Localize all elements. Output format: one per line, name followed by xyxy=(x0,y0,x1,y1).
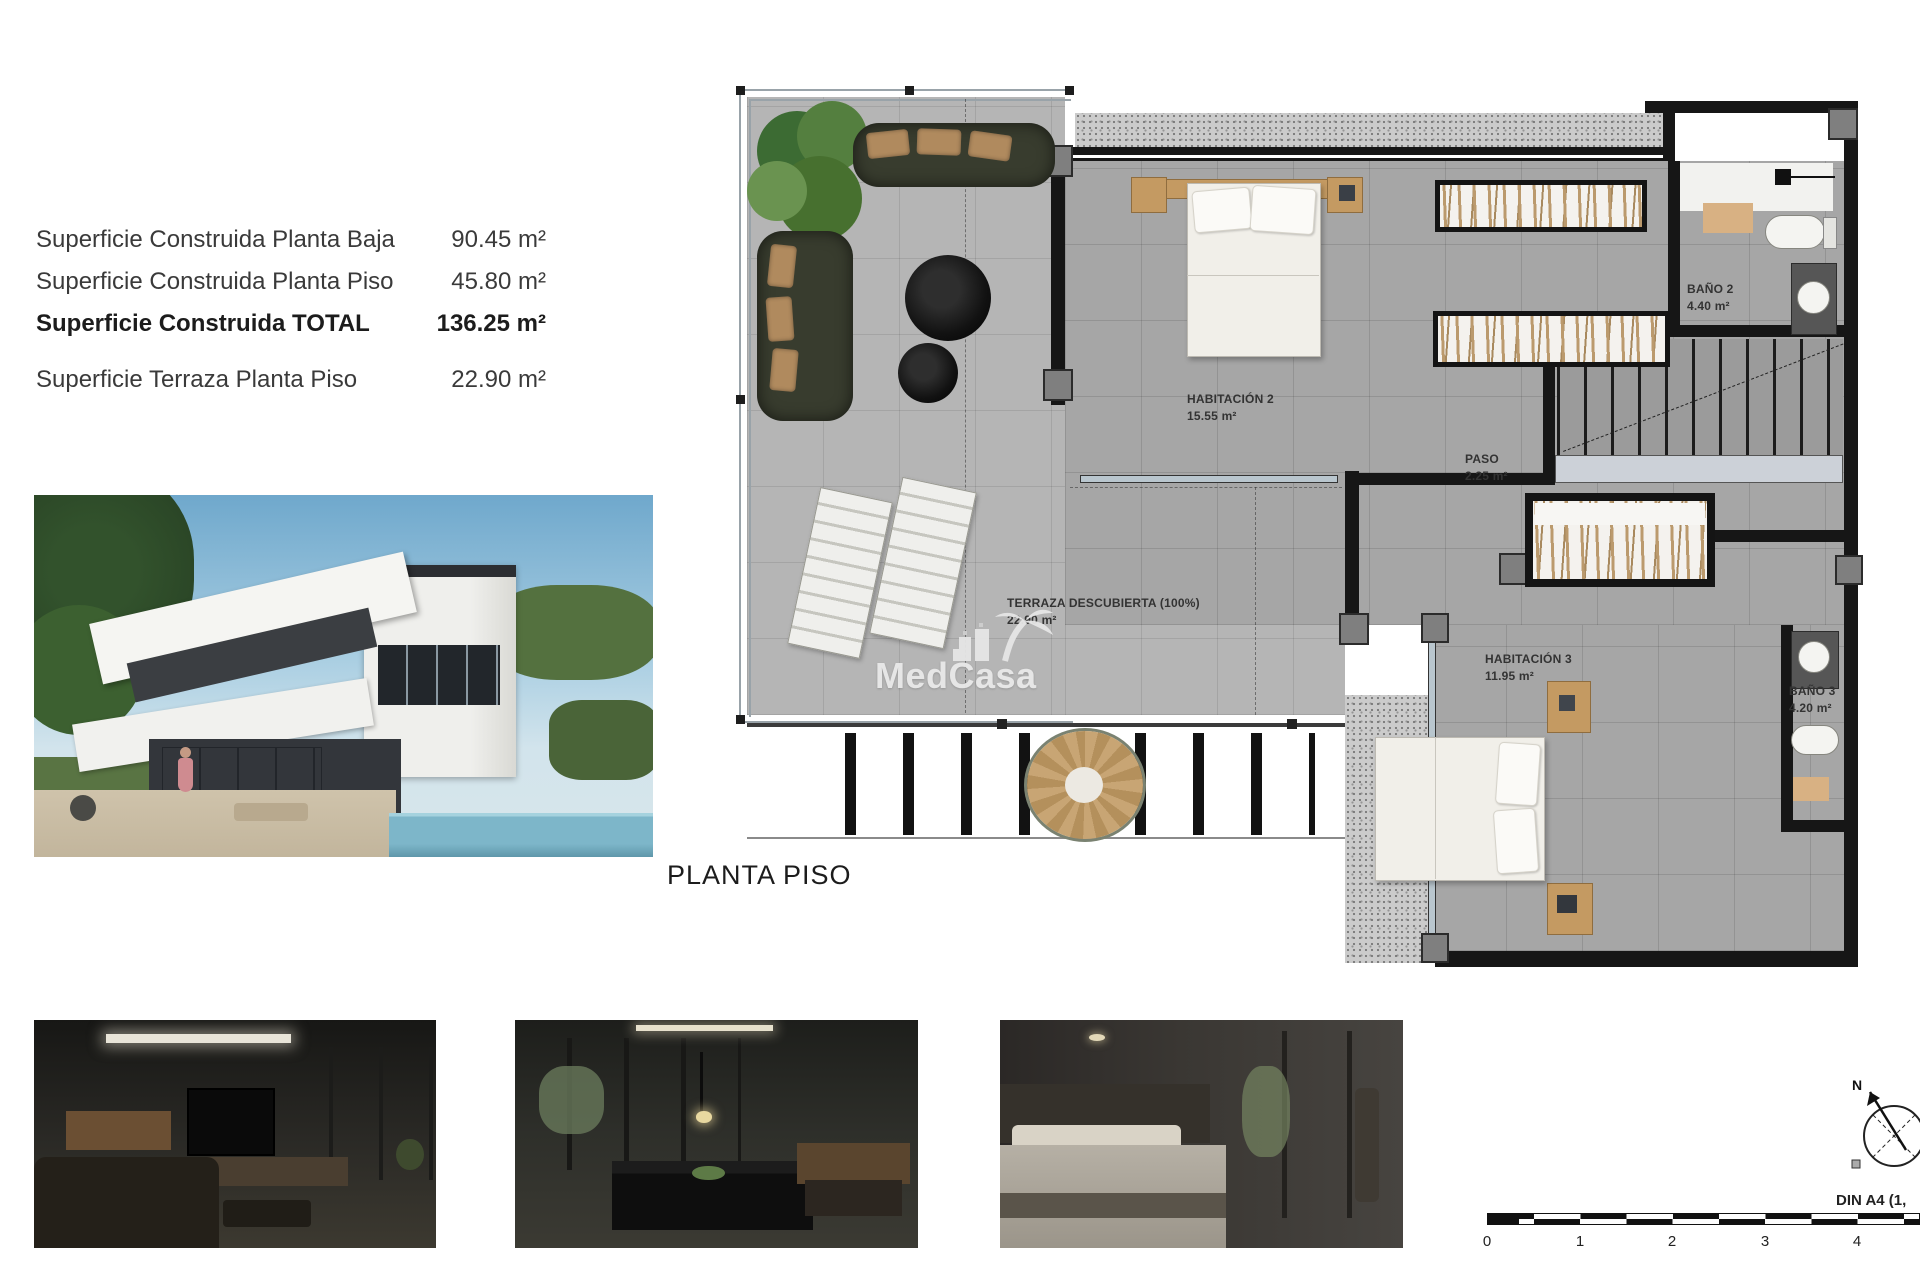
nightstand-decor xyxy=(1339,185,1355,201)
scale-tick: 1 xyxy=(1576,1233,1584,1250)
wall-jog xyxy=(1663,101,1675,161)
gravel-strip-top xyxy=(1075,113,1665,147)
summary-label: Superficie Construida Planta Piso xyxy=(36,268,394,295)
wall-top xyxy=(1065,147,1670,161)
shower-area xyxy=(1675,163,1833,211)
outdoor-furniture xyxy=(234,803,308,821)
scale-tick: 0 xyxy=(1483,1233,1491,1250)
summary-label: Superficie Terraza Planta Piso xyxy=(36,366,357,393)
railing-post xyxy=(905,86,914,95)
coffee-table-small xyxy=(898,343,958,403)
scale-bar-row xyxy=(1488,1219,1919,1224)
summary-row: Superficie Terraza Planta Piso 22.90 m² xyxy=(36,366,546,394)
pillow xyxy=(1249,185,1316,235)
room-label-bano-2: BAÑO 2 4.40 m² xyxy=(1687,281,1734,315)
sofa-cushion xyxy=(917,128,962,156)
person-silhouette xyxy=(1355,1088,1379,1202)
summary-value: 136.25 m² xyxy=(437,310,546,338)
scale-tick: 2 xyxy=(1668,1233,1676,1250)
column xyxy=(1421,933,1449,963)
desk-decor xyxy=(1557,895,1577,913)
column xyxy=(1043,369,1073,401)
summary-label: Superficie Construida Planta Baja xyxy=(36,226,395,253)
north-label: N xyxy=(1852,1077,1862,1093)
toilet-tank xyxy=(1823,217,1837,249)
watermark-text: MedCasa xyxy=(875,655,1037,697)
nightstand xyxy=(1131,177,1167,213)
nightstand-decor xyxy=(1559,695,1575,711)
summary-row: Superficie Construida Planta Piso 45.80 … xyxy=(36,268,546,296)
washbasin xyxy=(1798,641,1830,673)
planter-pot xyxy=(70,795,96,821)
ceiling-light xyxy=(636,1025,773,1032)
floor-plan: MedCasa HABITACIÓN 2 15.55 m² BAÑO 2 4.4… xyxy=(735,85,1858,986)
ceiling-spot xyxy=(1089,1034,1105,1041)
railing-post xyxy=(736,395,745,404)
column xyxy=(1339,613,1369,645)
bed-throw xyxy=(1000,1193,1226,1218)
pergola-bracket xyxy=(1287,719,1297,729)
wood-cabinet xyxy=(66,1111,171,1150)
photo-bedroom xyxy=(1000,1020,1403,1248)
stair-landing xyxy=(1555,455,1843,483)
wall-paso-north xyxy=(1355,473,1555,485)
wardrobe-shelf xyxy=(1535,503,1705,525)
pool xyxy=(389,813,653,857)
dining-table xyxy=(797,1143,910,1184)
summary-label: Superficie Construida TOTAL xyxy=(36,310,370,337)
railing-post xyxy=(736,715,745,724)
plant xyxy=(396,1139,424,1171)
column xyxy=(1421,613,1449,643)
garden-greenery xyxy=(1242,1066,1290,1157)
room-label-bano-3: BAÑO 3 4.20 m² xyxy=(1789,683,1859,717)
toilet xyxy=(1765,215,1825,249)
fruit-bowl xyxy=(692,1166,724,1180)
summary-row-total: Superficie Construida TOTAL 136.25 m² xyxy=(36,310,546,338)
wall-bath2 xyxy=(1668,161,1680,335)
column xyxy=(1835,555,1863,585)
tv-screen xyxy=(187,1088,275,1156)
glass-doors-bedroom2 xyxy=(1080,475,1338,483)
railing xyxy=(739,89,741,723)
shower-head xyxy=(1775,169,1791,185)
coffee-table-large xyxy=(905,255,991,341)
table-center xyxy=(1065,767,1103,803)
duvet-fold xyxy=(1187,275,1319,276)
sofa xyxy=(34,1157,219,1248)
sofa-cushion xyxy=(765,296,794,342)
pendant-light xyxy=(696,1111,712,1122)
medcasa-watermark: MedCasa xyxy=(875,603,1125,715)
wall-paso-west xyxy=(1345,471,1359,631)
scale-tick: 3 xyxy=(1761,1233,1769,1250)
photo-kitchen xyxy=(515,1020,918,1248)
wall-top-right xyxy=(1645,101,1858,113)
bath-mat xyxy=(1703,203,1753,233)
pergola-beam xyxy=(747,723,1345,727)
wall-terrace-divider xyxy=(1051,155,1065,405)
ceiling-light xyxy=(106,1034,291,1043)
wardrobe xyxy=(1433,311,1670,367)
summary-value: 22.90 m² xyxy=(451,366,546,394)
wardrobe xyxy=(1435,180,1647,232)
sofa-cushion xyxy=(866,129,910,159)
person-figure xyxy=(178,758,193,792)
summary-value: 45.80 m² xyxy=(451,268,546,296)
dashed-line xyxy=(1070,487,1342,488)
photo-living-room xyxy=(34,1020,436,1248)
person-head xyxy=(180,747,191,758)
washbasin xyxy=(1797,281,1830,314)
sofa-cushion xyxy=(767,244,797,288)
wall-bottom xyxy=(1435,951,1858,967)
pergola-edge xyxy=(747,837,1345,839)
railing-post xyxy=(1065,86,1074,95)
garden-greenery xyxy=(539,1066,603,1134)
coffee-table xyxy=(223,1200,311,1227)
brochure-page: Superficie Construida Planta Baja 90.45 … xyxy=(0,0,1920,1280)
toilet xyxy=(1791,725,1839,755)
dining-table xyxy=(203,1157,348,1187)
bath-mat xyxy=(1793,777,1829,801)
pendant-cord xyxy=(700,1052,703,1111)
scale-bar xyxy=(1487,1213,1920,1225)
pillow xyxy=(1495,742,1541,807)
duvet-fold xyxy=(1435,737,1436,879)
summary-value: 90.45 m² xyxy=(451,226,546,254)
scale-tick: 4 xyxy=(1853,1233,1861,1250)
compass-icon: N xyxy=(1848,1072,1920,1182)
summary-row: Superficie Construida Planta Baja 90.45 … xyxy=(36,226,546,254)
sofa-cushion xyxy=(769,348,799,392)
pergola-bracket xyxy=(997,719,1007,729)
din-scale-label: DIN A4 (1, xyxy=(1836,1192,1906,1209)
wall-hab3-north xyxy=(1713,530,1845,542)
room-label-habitacion-2: HABITACIÓN 2 15.55 m² xyxy=(1187,391,1274,425)
room-label-habitacion-3: HABITACIÓN 3 11.95 m² xyxy=(1485,651,1572,685)
column xyxy=(1828,108,1858,140)
pillow xyxy=(1493,808,1539,875)
dashed-line xyxy=(1255,487,1256,715)
shower-arm xyxy=(1791,176,1835,178)
villa-exterior-photo xyxy=(34,495,653,857)
railing-post xyxy=(736,86,745,95)
pillow xyxy=(1191,187,1252,234)
hedge xyxy=(549,700,653,780)
room-label-paso: PASO 2.25 m² xyxy=(1465,451,1508,485)
chairs xyxy=(805,1180,902,1216)
wall-bath3-south xyxy=(1781,820,1858,832)
villa-window-band xyxy=(378,645,500,705)
